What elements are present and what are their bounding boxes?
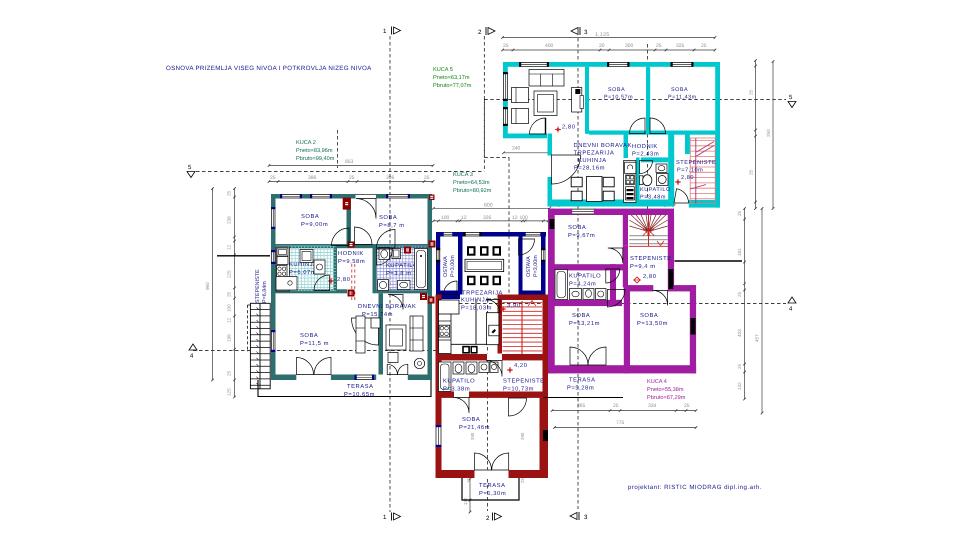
svg-text:KUHINJA: KUHINJA bbox=[289, 262, 318, 268]
svg-text:P=5,28m: P=5,28m bbox=[567, 385, 594, 392]
svg-text:P=7,10m: P=7,10m bbox=[677, 168, 703, 174]
svg-text:STEPENISTE: STEPENISTE bbox=[503, 378, 545, 385]
svg-text:25: 25 bbox=[467, 478, 472, 483]
svg-text:400: 400 bbox=[545, 43, 554, 49]
svg-text:390: 390 bbox=[520, 432, 525, 440]
svg-text:DNEVNI BORAVAK: DNEVNI BORAVAK bbox=[574, 142, 632, 149]
svg-text:KUPATILO: KUPATILO bbox=[640, 187, 671, 193]
svg-text:25: 25 bbox=[227, 190, 232, 196]
svg-text:projektant: RISTIC MIODRAG dip: projektant: RISTIC MIODRAG dipl.ing.arh. bbox=[628, 484, 762, 491]
svg-text:130: 130 bbox=[463, 497, 468, 505]
svg-text:P=1,30m: P=1,30m bbox=[479, 490, 506, 497]
svg-text:TERASA: TERASA bbox=[569, 377, 596, 384]
svg-text:Pneto=55,38m: Pneto=55,38m bbox=[647, 387, 684, 393]
svg-text:300: 300 bbox=[625, 43, 634, 49]
svg-text:25: 25 bbox=[424, 175, 430, 181]
svg-text:100: 100 bbox=[441, 215, 450, 221]
svg-text:2,80: 2,80 bbox=[681, 175, 694, 181]
svg-text:238: 238 bbox=[227, 216, 232, 224]
svg-text:TRPEZARIJA: TRPEZARIJA bbox=[574, 151, 615, 157]
svg-text:OSNOVA PRIZEMLJA VISEG NIVOA I: OSNOVA PRIZEMLJA VISEG NIVOA I POTKROVLJ… bbox=[166, 65, 372, 72]
svg-text:Pneto=64,53m: Pneto=64,53m bbox=[453, 180, 490, 186]
svg-text:25: 25 bbox=[684, 403, 690, 409]
svg-text:TRPEZARIJA: TRPEZARIJA bbox=[462, 291, 503, 297]
svg-text:P=9,67m: P=9,67m bbox=[568, 232, 595, 239]
svg-text:25: 25 bbox=[349, 175, 355, 181]
svg-text:Pbruto=77,07m: Pbruto=77,07m bbox=[433, 82, 472, 89]
svg-text:1,125: 1,125 bbox=[595, 32, 609, 38]
svg-text:25: 25 bbox=[701, 43, 707, 49]
svg-text:P=10,57m: P=10,57m bbox=[604, 95, 633, 101]
svg-text:2,80: 2,80 bbox=[643, 273, 656, 280]
svg-text:STEPENISTE: STEPENISTE bbox=[676, 160, 716, 166]
svg-text:P=3,00m: P=3,00m bbox=[450, 255, 456, 277]
svg-text:20: 20 bbox=[599, 43, 605, 49]
svg-text:SOBA: SOBA bbox=[300, 332, 318, 339]
svg-text:12: 12 bbox=[227, 244, 232, 250]
svg-text:TERASA: TERASA bbox=[347, 383, 374, 390]
svg-text:P=10,73m: P=10,73m bbox=[503, 386, 534, 393]
svg-text:P=11,43m: P=11,43m bbox=[668, 95, 697, 101]
svg-text:STEPENISTE: STEPENISTE bbox=[630, 255, 672, 262]
svg-text:2,80: 2,80 bbox=[562, 124, 575, 131]
svg-text:225: 225 bbox=[227, 270, 232, 278]
svg-text:365: 365 bbox=[577, 403, 586, 409]
svg-text:Pneto=63,17m: Pneto=63,17m bbox=[433, 75, 470, 81]
svg-text:853: 853 bbox=[345, 159, 354, 165]
svg-text:3,90: 3,90 bbox=[507, 302, 520, 309]
svg-text:386: 386 bbox=[386, 175, 395, 181]
svg-text:TERASA: TERASA bbox=[479, 482, 506, 489]
svg-text:250: 250 bbox=[766, 129, 771, 137]
svg-text:SOBA: SOBA bbox=[671, 87, 688, 93]
svg-text:25: 25 bbox=[503, 43, 509, 49]
svg-text:SOBA: SOBA bbox=[301, 213, 319, 220]
svg-text:334: 334 bbox=[648, 403, 657, 409]
svg-text:25: 25 bbox=[613, 403, 619, 409]
svg-text:KUHINJA: KUHINJA bbox=[578, 158, 607, 164]
svg-text:1: 1 bbox=[383, 514, 387, 521]
svg-text:Pbruto=80,92m: Pbruto=80,92m bbox=[453, 187, 492, 194]
svg-text:P=4,24m: P=4,24m bbox=[569, 281, 596, 288]
svg-text:OSTAVA: OSTAVA bbox=[526, 256, 532, 277]
svg-text:KUCA 2: KUCA 2 bbox=[296, 140, 316, 146]
svg-text:12: 12 bbox=[512, 215, 518, 221]
svg-text:25: 25 bbox=[656, 43, 662, 49]
svg-text:SOBA: SOBA bbox=[640, 312, 658, 319]
svg-text:P=13,21m: P=13,21m bbox=[569, 320, 600, 327]
svg-text:240: 240 bbox=[512, 146, 521, 152]
svg-text:100: 100 bbox=[227, 304, 232, 312]
svg-text:P=3,48m: P=3,48m bbox=[640, 195, 666, 201]
svg-text:25: 25 bbox=[749, 89, 754, 95]
svg-text:SOBA: SOBA bbox=[608, 87, 625, 93]
svg-text:P=13,50m: P=13,50m bbox=[637, 320, 668, 327]
svg-text:25: 25 bbox=[227, 370, 232, 376]
svg-text:SOBA: SOBA bbox=[572, 312, 590, 319]
svg-text:12: 12 bbox=[461, 215, 467, 221]
svg-text:P=9,4 m: P=9,4 m bbox=[630, 263, 656, 270]
svg-text:4,20: 4,20 bbox=[514, 362, 527, 369]
svg-text:25: 25 bbox=[737, 291, 742, 297]
svg-text:P=9,58m: P=9,58m bbox=[338, 258, 365, 265]
svg-text:SOBA: SOBA bbox=[379, 214, 397, 221]
svg-text:2,80: 2,80 bbox=[337, 276, 350, 283]
svg-text:P=21,46m: P=21,46m bbox=[459, 424, 490, 431]
svg-text:KUPATILO: KUPATILO bbox=[569, 273, 601, 280]
svg-text:P=3,8 m: P=3,8 m bbox=[386, 270, 412, 277]
svg-text:25: 25 bbox=[737, 363, 742, 369]
svg-text:2: 2 bbox=[478, 29, 482, 36]
svg-text:P=9,00m: P=9,00m bbox=[301, 221, 328, 228]
svg-text:390: 390 bbox=[470, 432, 475, 440]
svg-text:25: 25 bbox=[520, 478, 525, 483]
svg-text:P=11,5 m: P=11,5 m bbox=[300, 341, 329, 347]
svg-text:181: 181 bbox=[737, 248, 742, 256]
svg-text:KUHINJA: KUHINJA bbox=[461, 298, 490, 304]
svg-text:2: 2 bbox=[486, 515, 490, 522]
svg-text:3: 3 bbox=[584, 514, 588, 521]
svg-text:Pbruto=99,40m: Pbruto=99,40m bbox=[296, 155, 335, 162]
svg-text:P=2,43m: P=2,43m bbox=[632, 151, 659, 158]
svg-text:600: 600 bbox=[484, 203, 493, 209]
svg-text:Pbruto=67,29m: Pbruto=67,29m bbox=[647, 394, 686, 401]
svg-text:403: 403 bbox=[737, 329, 742, 337]
svg-text:SOBA: SOBA bbox=[462, 416, 480, 423]
svg-text:25: 25 bbox=[737, 210, 742, 216]
svg-text:HODNIK: HODNIK bbox=[632, 143, 658, 150]
svg-text:386: 386 bbox=[308, 175, 317, 181]
svg-text:198: 198 bbox=[227, 334, 232, 342]
svg-text:326: 326 bbox=[483, 215, 492, 221]
svg-text:KUCA 5: KUCA 5 bbox=[433, 67, 453, 73]
svg-text:1: 1 bbox=[383, 28, 387, 35]
svg-text:25: 25 bbox=[749, 169, 754, 175]
svg-text:325: 325 bbox=[676, 43, 685, 49]
svg-text:12: 12 bbox=[227, 317, 232, 323]
svg-text:P=6,84m: P=6,84m bbox=[262, 281, 268, 303]
svg-text:SOBA: SOBA bbox=[568, 224, 586, 231]
svg-text:KUCA 4: KUCA 4 bbox=[647, 379, 667, 385]
svg-text:25: 25 bbox=[270, 175, 276, 181]
svg-text:25: 25 bbox=[227, 291, 232, 297]
svg-text:P=6,07m: P=6,07m bbox=[289, 269, 316, 276]
svg-text:OSTAVA: OSTAVA bbox=[443, 256, 449, 277]
svg-text:HODNIK: HODNIK bbox=[338, 250, 364, 257]
svg-text:KUPATILO: KUPATILO bbox=[443, 378, 475, 385]
svg-text:3: 3 bbox=[584, 29, 588, 36]
svg-text:132: 132 bbox=[737, 382, 742, 390]
svg-text:KUPATILO: KUPATILO bbox=[386, 262, 418, 269]
svg-text:DNEVNI BORAVAK: DNEVNI BORAVAK bbox=[358, 303, 416, 310]
svg-text:P=18,03m: P=18,03m bbox=[461, 305, 492, 312]
svg-text:P=3,00m: P=3,00m bbox=[533, 255, 539, 277]
svg-text:P=15,74m: P=15,74m bbox=[362, 312, 393, 318]
svg-text:960: 960 bbox=[205, 282, 210, 290]
svg-text:P=8,7 m: P=8,7 m bbox=[379, 222, 405, 229]
svg-text:457: 457 bbox=[755, 334, 760, 342]
svg-text:775: 775 bbox=[616, 420, 625, 426]
svg-text:125: 125 bbox=[227, 388, 232, 396]
svg-text:KUCA 3: KUCA 3 bbox=[453, 172, 473, 178]
svg-text:STEPENISTE: STEPENISTE bbox=[255, 269, 261, 303]
svg-text:Pneto=83,96m: Pneto=83,96m bbox=[296, 148, 333, 154]
svg-text:100: 100 bbox=[520, 215, 529, 221]
